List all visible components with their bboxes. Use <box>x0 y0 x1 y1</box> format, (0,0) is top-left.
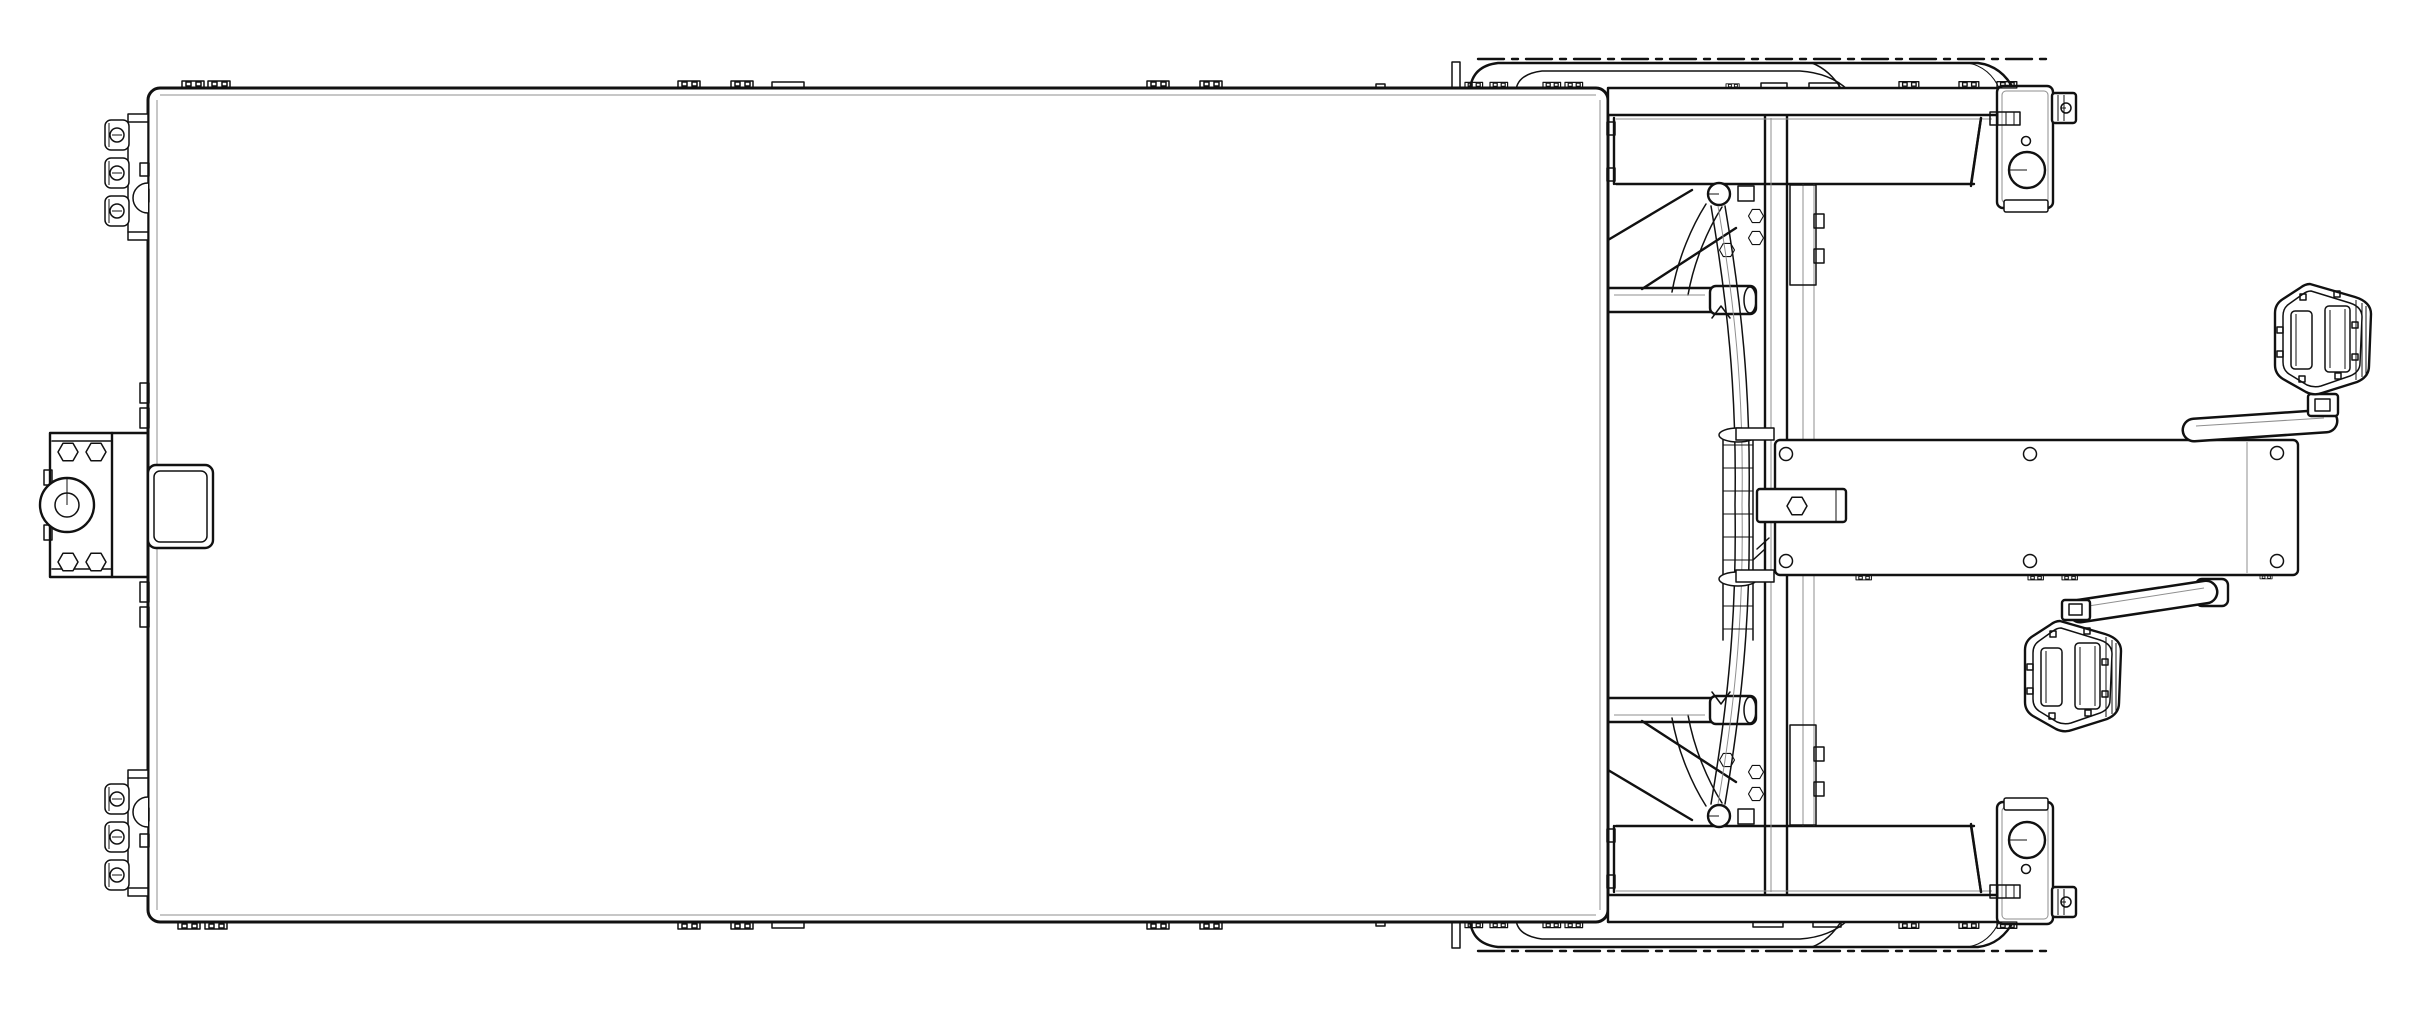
edge-clamp-cluster-top-left <box>105 114 149 240</box>
trike-top-view-drawing <box>0 0 2409 1020</box>
pedal-top <box>2275 284 2371 394</box>
side-beam-top <box>1608 88 2050 119</box>
axle-stub-top <box>2052 93 2076 123</box>
boom-tongue <box>1757 489 1846 522</box>
cargo-platform <box>148 88 1608 922</box>
edge-mast-pin-bottom <box>1452 922 1460 948</box>
hitch-block <box>148 465 213 548</box>
boom-clamp-top <box>1736 428 1774 440</box>
pedal-bottom <box>2025 621 2121 731</box>
line-art <box>40 59 2371 951</box>
axle-stub-bottom <box>2052 887 2076 917</box>
boom-clamp-bottom <box>1736 570 1774 582</box>
pedal-spindle-top <box>2308 394 2338 416</box>
pedal-spindle-bottom <box>2062 600 2090 620</box>
crank-arm-top <box>2194 418 2326 430</box>
side-beam-bottom <box>1608 891 2050 922</box>
edge-clamp-cluster-bottom-left <box>105 770 149 896</box>
edge-mast-pin-top <box>1452 62 1460 88</box>
technical-drawing-canvas <box>0 0 2409 1020</box>
